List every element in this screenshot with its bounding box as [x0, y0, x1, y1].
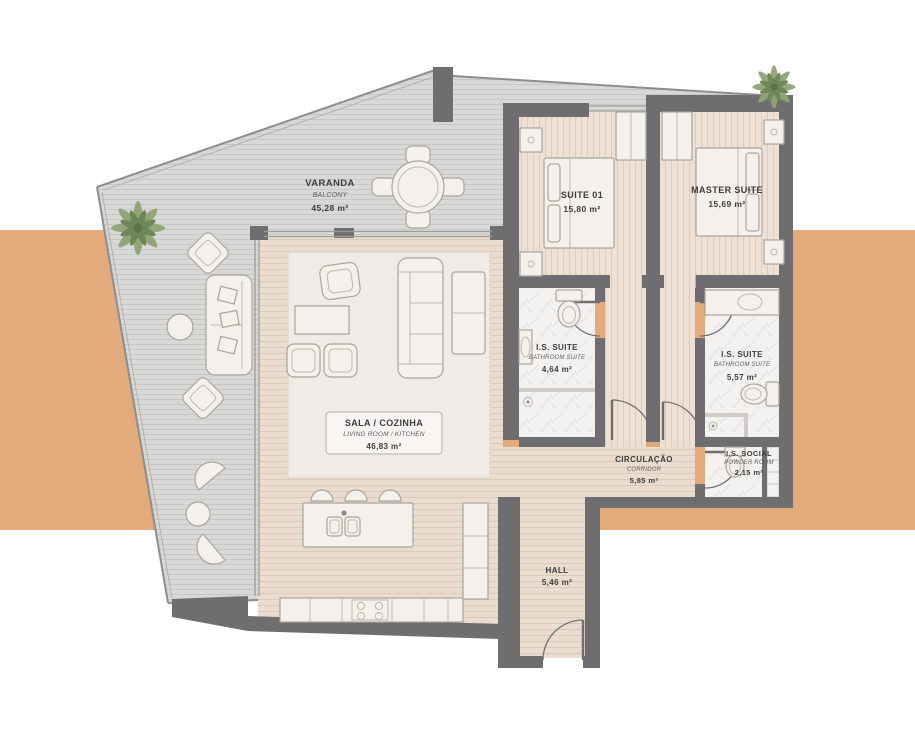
svg-text:15,69 m²: 15,69 m²: [708, 199, 745, 209]
svg-text:CORRIDOR: CORRIDOR: [627, 467, 662, 473]
svg-text:LIVING ROOM / KITCHEN: LIVING ROOM / KITCHEN: [343, 431, 425, 438]
svg-text:I.S. SUITE: I.S. SUITE: [721, 350, 763, 359]
svg-text:SUITE 01: SUITE 01: [561, 190, 603, 200]
floor-plan: VARANDA BALCONY 45,28 m² SUITE 01 15,80 …: [0, 0, 915, 751]
svg-text:MASTER SUITE: MASTER SUITE: [691, 185, 763, 195]
svg-text:5,85 m²: 5,85 m²: [630, 476, 659, 485]
side-table: [167, 314, 193, 340]
svg-text:2,15 m²: 2,15 m²: [735, 468, 764, 477]
svg-text:I.S. SUITE: I.S. SUITE: [536, 343, 578, 352]
nightstand: [520, 128, 542, 152]
svg-text:5,46 m²: 5,46 m²: [542, 578, 572, 587]
floor-plan-page: VARANDA BALCONY 45,28 m² SUITE 01 15,80 …: [0, 0, 915, 751]
master-walkway-floor: [660, 275, 695, 447]
toilet-tank: [766, 382, 779, 406]
nightstand: [520, 252, 542, 276]
svg-text:HALL: HALL: [546, 566, 569, 575]
pillow: [548, 164, 560, 201]
svg-text:46,83 m²: 46,83 m²: [366, 442, 401, 451]
tall-cabinet: [463, 503, 488, 599]
coffee-table: [295, 306, 349, 334]
vanity: [705, 290, 779, 315]
armchair: [287, 344, 320, 377]
palm-tree-icon: [111, 201, 165, 255]
svg-text:POWDER ROOM: POWDER ROOM: [724, 460, 774, 466]
palm-tree-icon: [752, 65, 795, 108]
svg-text:SALA / COZINHA: SALA / COZINHA: [345, 418, 423, 428]
armchair: [324, 344, 357, 377]
svg-text:BALCONY: BALCONY: [313, 192, 349, 199]
nightstand: [764, 120, 784, 144]
bed: [544, 158, 614, 248]
room-label-sala: SALA / COZINHA LIVING ROOM / KITCHEN 46,…: [326, 412, 442, 454]
armchair: [319, 262, 361, 301]
chaise: [452, 272, 485, 354]
sofa: [398, 258, 443, 378]
side-table: [186, 502, 210, 526]
pillow: [548, 205, 560, 242]
svg-text:4,64 m²: 4,64 m²: [542, 365, 572, 374]
svg-text:45,28 m²: 45,28 m²: [311, 203, 348, 213]
svg-text:5,57 m²: 5,57 m²: [727, 373, 757, 382]
shower-screen: [705, 413, 747, 417]
shower-screen: [519, 388, 595, 392]
room-label-varanda: VARANDA BALCONY 45,28 m²: [305, 178, 355, 213]
svg-text:VARANDA: VARANDA: [305, 178, 355, 189]
kitchen-island: [303, 490, 413, 547]
svg-text:CIRCULAÇÃO: CIRCULAÇÃO: [615, 455, 673, 464]
svg-text:I.S. SOCIAL: I.S. SOCIAL: [726, 449, 772, 458]
svg-text:BATHROOM SUITE: BATHROOM SUITE: [529, 355, 586, 361]
outdoor-sofa: [206, 275, 252, 375]
svg-text:BATHROOM SUITE: BATHROOM SUITE: [714, 362, 771, 368]
kitchen-counter: [280, 598, 463, 622]
toilet-tank: [556, 290, 582, 301]
faucet: [341, 510, 346, 515]
nightstand: [764, 240, 784, 264]
svg-text:15,80 m²: 15,80 m²: [563, 204, 600, 214]
pillow: [746, 194, 759, 231]
